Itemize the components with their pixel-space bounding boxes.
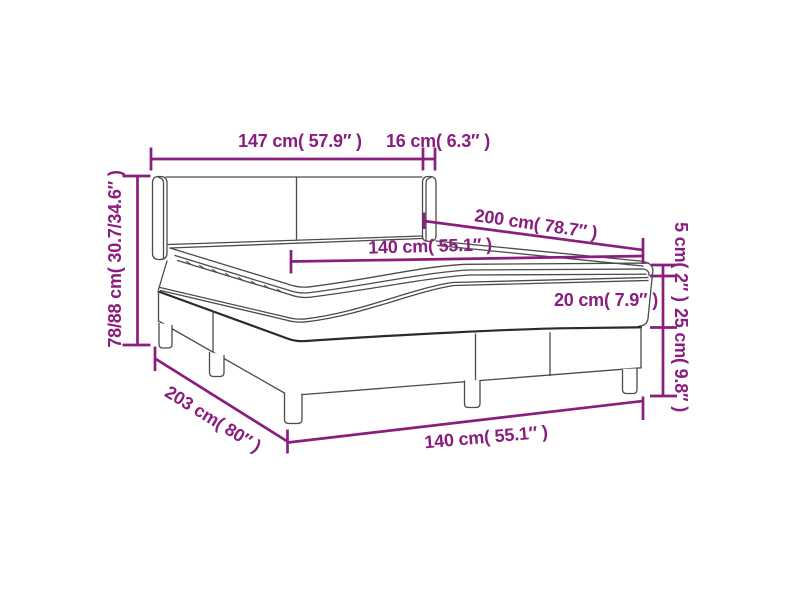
leg-side-middle (210, 352, 225, 377)
dim-total-height: 78/88 cm( 30.7/34.6″ ) (105, 170, 151, 348)
leg-front-corner (285, 393, 303, 424)
leg-head-left (159, 323, 172, 348)
headboard-left-wing (153, 177, 168, 260)
dim-label-frame-width: 140 cm( 55.1″ ) (424, 422, 549, 453)
headboard-right-wing (423, 177, 437, 242)
dimension-annotations: 147 cm( 57.9″ ) 16 cm( 6.3″ ) 78/88 cm( … (105, 131, 691, 456)
leg-front-middle (465, 380, 481, 408)
diagram-canvas: 147 cm( 57.9″ ) 16 cm( 6.3″ ) 78/88 cm( … (0, 0, 800, 600)
dim-label-mattress-width: 140 cm( 55.1″ ) (368, 234, 492, 257)
dim-label-mattress-height: 20 cm( 7.9″ ) (554, 290, 658, 310)
dim-label-base-height: 25 cm( 9.8″ ) (671, 308, 691, 412)
dim-label-headboard-side-depth: 16 cm( 6.3″ ) (386, 131, 490, 151)
dim-label-topper-height: 5 cm( 2″ ) (671, 222, 691, 302)
mattress-left-corner-edge (159, 261, 168, 290)
dim-headboard-width: 147 cm( 57.9″ ) 16 cm( 6.3″ ) (151, 131, 490, 171)
leg-front-right (623, 369, 638, 394)
dim-label-headboard-width: 147 cm( 57.9″ ) (238, 131, 362, 151)
dim-label-total-height: 78/88 cm( 30.7/34.6″ ) (105, 170, 125, 348)
dimension-diagram: 147 cm( 57.9″ ) 16 cm( 6.3″ ) 78/88 cm( … (0, 0, 800, 600)
piping-stitches (186, 261, 282, 292)
